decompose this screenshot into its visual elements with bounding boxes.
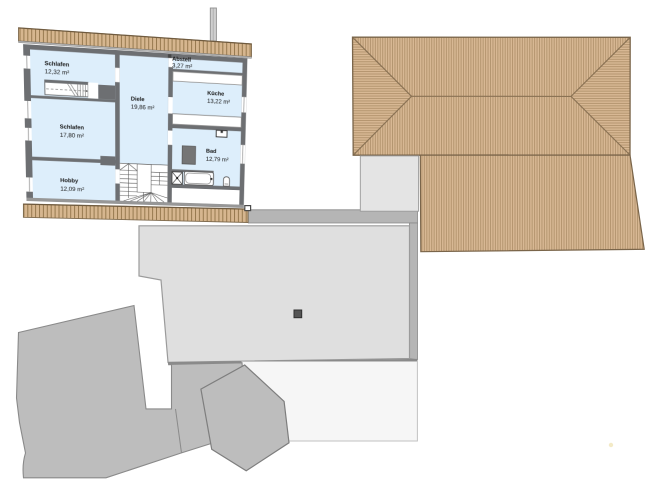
- svg-text:13,22 m²: 13,22 m²: [207, 98, 230, 106]
- svg-text:19,86 m²: 19,86 m²: [131, 104, 155, 112]
- svg-text:Diele: Diele: [131, 97, 145, 103]
- svg-text:Hobby: Hobby: [60, 178, 79, 184]
- svg-text:3,27 m²: 3,27 m²: [172, 63, 192, 71]
- svg-text:Schlafen: Schlafen: [60, 125, 85, 132]
- svg-text:12,32 m²: 12,32 m²: [45, 68, 70, 76]
- svg-text:17,80 m²: 17,80 m²: [60, 132, 84, 140]
- svg-text:Küche: Küche: [207, 91, 225, 98]
- svg-text:12,79 m²: 12,79 m²: [206, 156, 229, 163]
- svg-text:Bad: Bad: [206, 149, 217, 155]
- svg-text:12,09 m²: 12,09 m²: [60, 186, 84, 193]
